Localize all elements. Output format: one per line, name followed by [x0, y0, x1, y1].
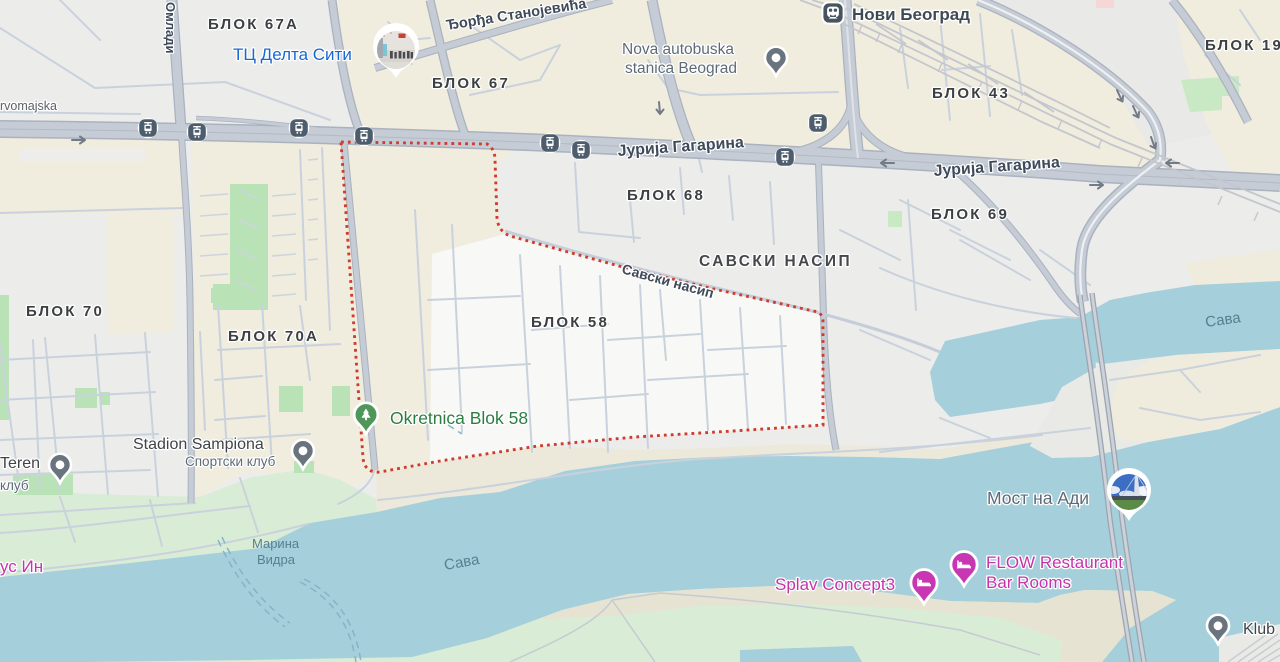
svg-text:rvomajska: rvomajska	[0, 99, 57, 113]
svg-text:Нови Београд: Нови Београд	[852, 5, 970, 24]
svg-text:Видра: Видра	[257, 552, 296, 567]
svg-text:ТЦ Делта Сити: ТЦ Делта Сити	[233, 45, 352, 64]
svg-text:Омлади: Омлади	[163, 2, 178, 53]
svg-text:Teren: Teren	[0, 455, 40, 472]
svg-text:САВСКИ НАСИП: САВСКИ НАСИП	[699, 253, 852, 270]
svg-text:Nova autobuska: Nova autobuska	[622, 41, 734, 58]
svg-text:FLOW Restaurant: FLOW Restaurant	[986, 553, 1123, 572]
svg-text:Марина: Марина	[252, 536, 300, 551]
svg-text:Спортски клуб: Спортски клуб	[185, 454, 276, 469]
svg-text:Bar Rooms: Bar Rooms	[986, 573, 1071, 592]
svg-text:БЛОК 70: БЛОК 70	[26, 303, 104, 320]
svg-text:Okretnica Blok 58: Okretnica Blok 58	[390, 408, 528, 428]
svg-text:БЛОК 58: БЛОК 58	[531, 314, 609, 331]
svg-text:БЛОК 19: БЛОК 19	[1205, 37, 1280, 54]
svg-text:Мост на Ади: Мост на Ади	[987, 488, 1089, 508]
svg-text:Klub: Klub	[1243, 621, 1275, 638]
svg-text:Splav Concept3: Splav Concept3	[775, 575, 895, 594]
svg-text:stanica Beograd: stanica Beograd	[625, 60, 737, 77]
svg-text:ус Ин: ус Ин	[0, 557, 43, 576]
svg-text:БЛОК 67А: БЛОК 67А	[208, 16, 299, 33]
svg-text:БЛОК 68: БЛОК 68	[627, 187, 705, 204]
svg-text:БЛОК 67: БЛОК 67	[432, 75, 510, 92]
svg-text:клуб: клуб	[0, 478, 29, 493]
svg-text:Stadion Sampiona: Stadion Sampiona	[133, 436, 264, 453]
svg-text:БЛОК 70А: БЛОК 70А	[228, 328, 319, 345]
svg-text:БЛОК 43: БЛОК 43	[932, 85, 1010, 102]
svg-text:БЛОК 69: БЛОК 69	[931, 206, 1009, 223]
